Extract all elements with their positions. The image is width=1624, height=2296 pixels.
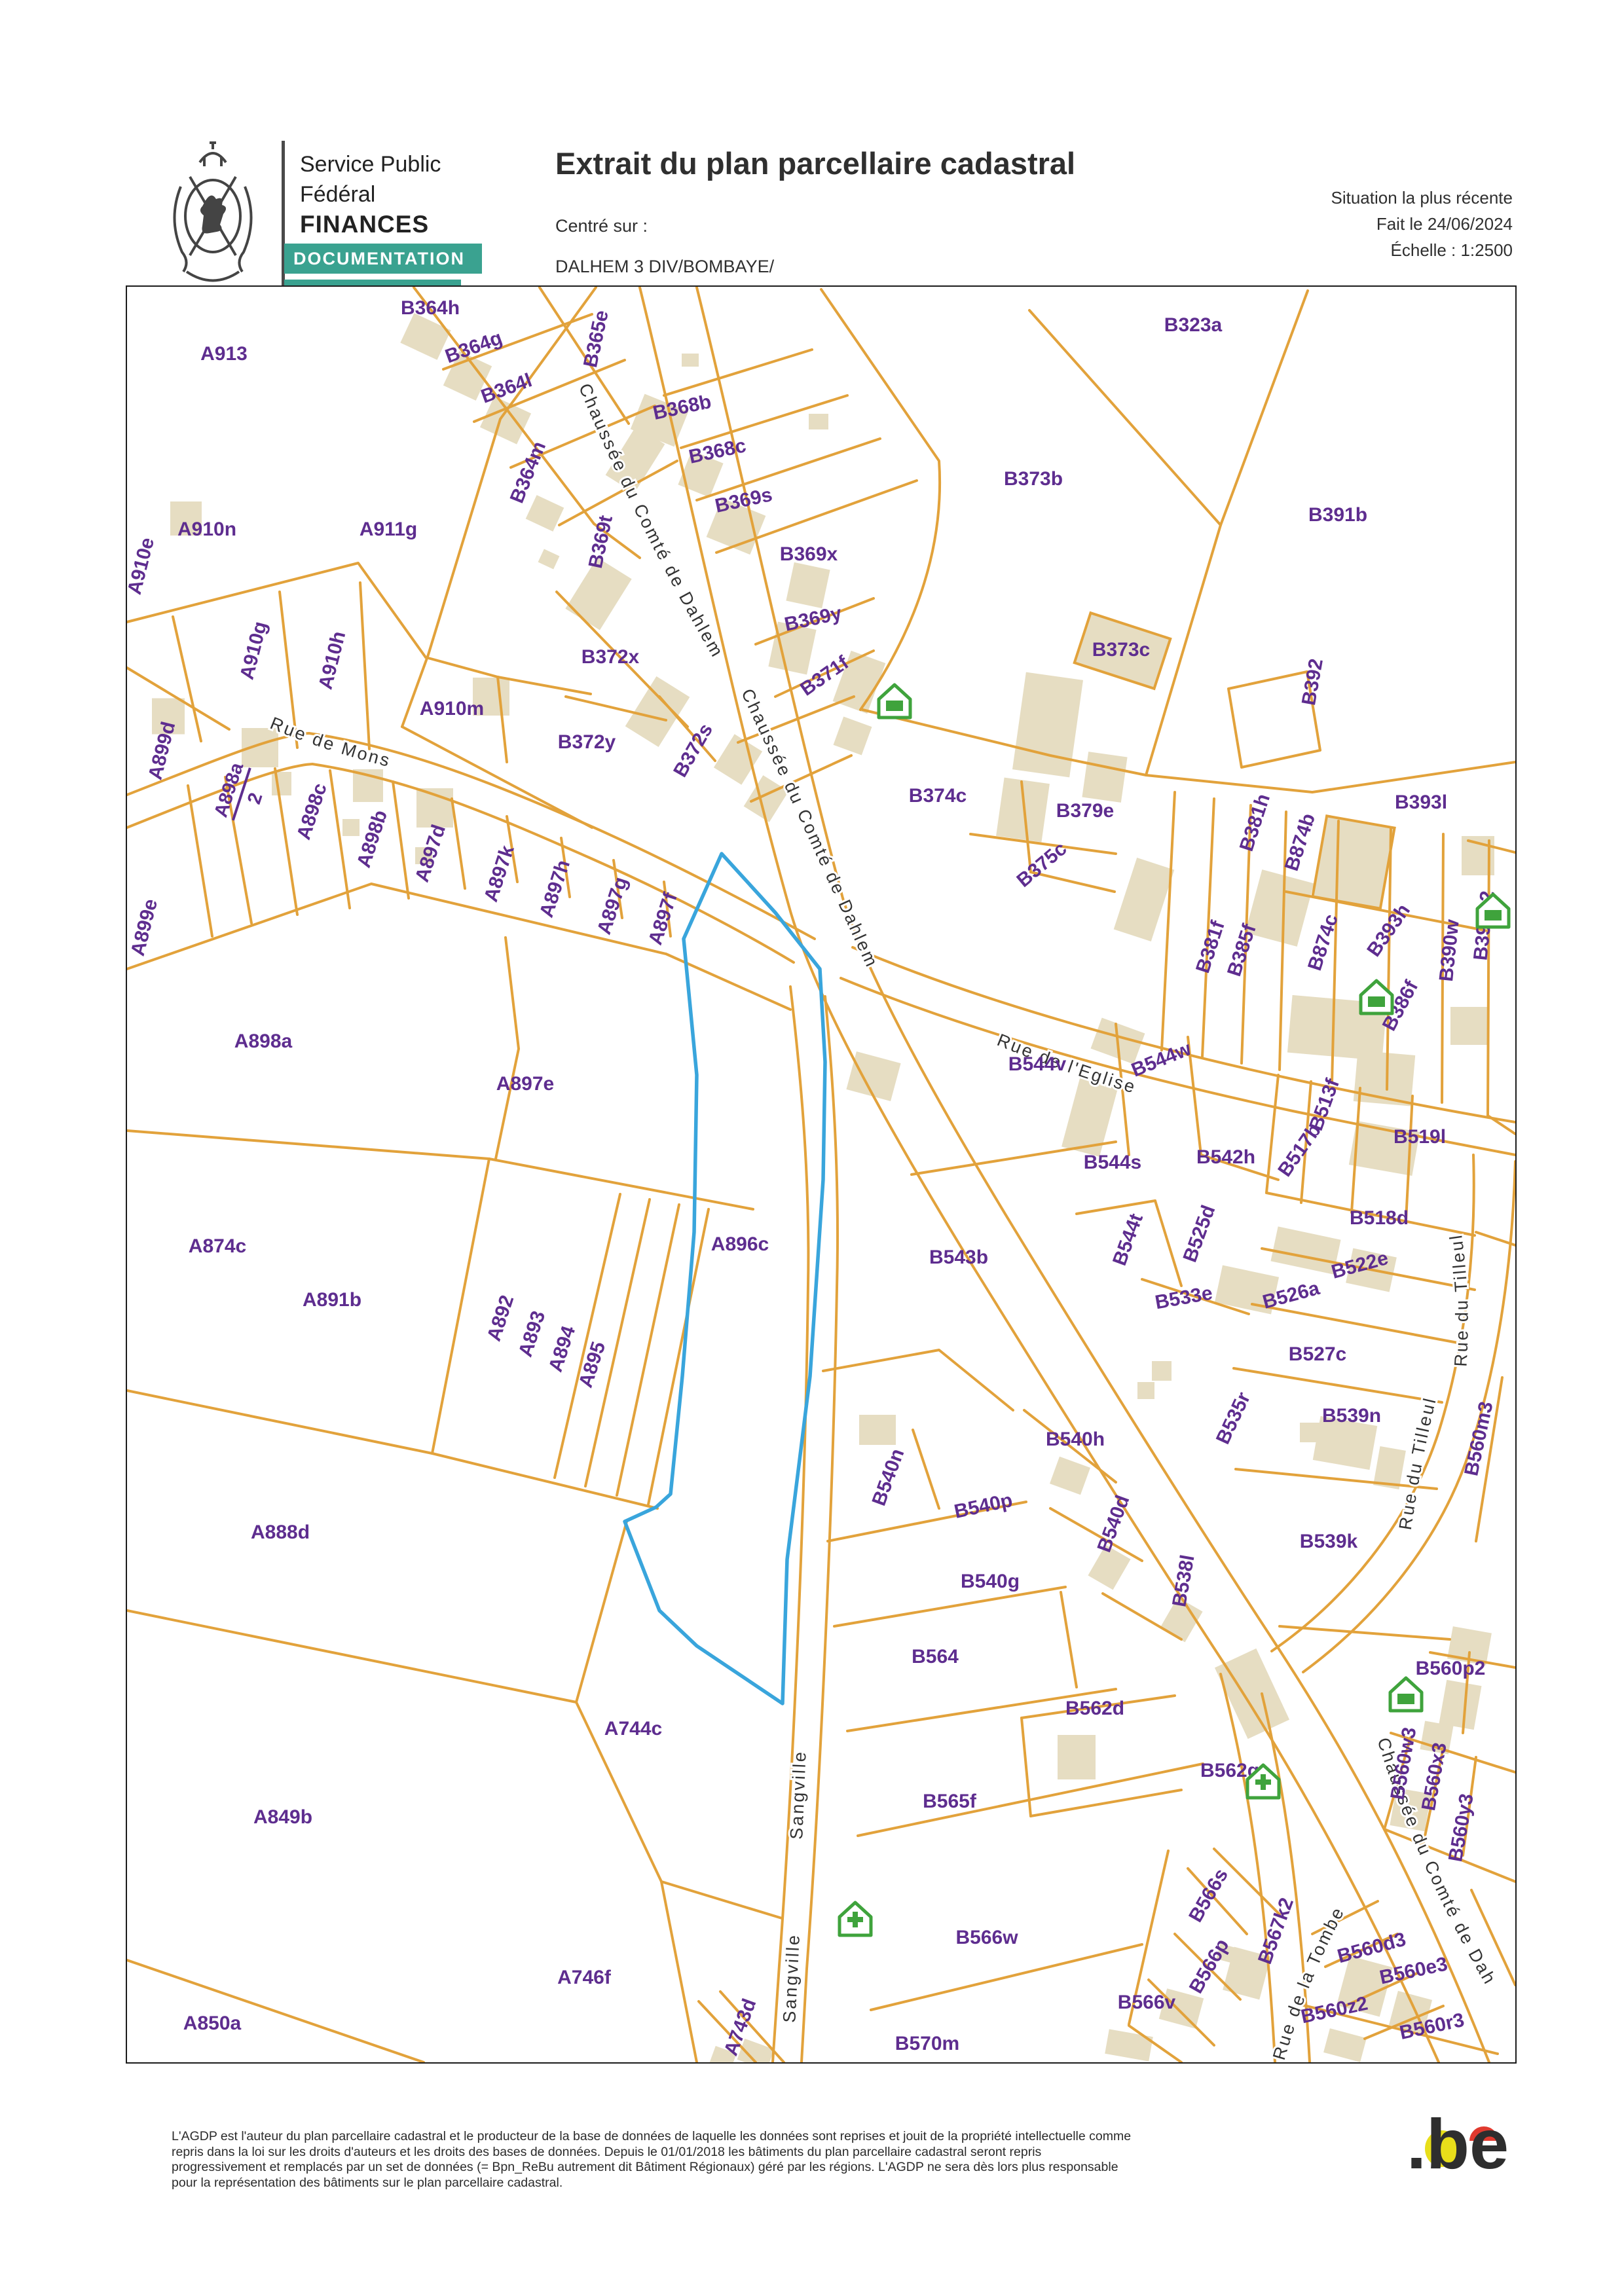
parcel-label: A896c	[711, 1233, 769, 1255]
building	[1300, 1423, 1319, 1442]
street-label: Sangville	[779, 1933, 803, 2023]
parcel-label: B562d	[1065, 1698, 1124, 1719]
parcel-boundary	[871, 1944, 1142, 2010]
page-title: Extrait du plan parcellaire cadastral	[555, 145, 1075, 181]
parcel-label: B369t	[585, 513, 617, 570]
parcel-label: A892	[483, 1292, 519, 1343]
building	[682, 354, 699, 367]
parcel-label: A849b	[253, 1806, 312, 1828]
parcel-label: B518d	[1350, 1207, 1409, 1229]
building	[1323, 2028, 1367, 2062]
parcel-label: B369x	[780, 543, 838, 565]
building	[1050, 1457, 1090, 1495]
org-line-3: FINANCES	[300, 210, 441, 240]
parcel-boundary	[393, 782, 409, 898]
parcel-label: B539n	[1322, 1405, 1381, 1427]
building	[1137, 1382, 1154, 1399]
parcel-label: A888d	[251, 1522, 310, 1543]
parcel-boundary	[821, 289, 940, 710]
building	[1152, 1361, 1172, 1381]
parcel-boundary	[188, 786, 212, 936]
parcel-label: B364m	[506, 439, 550, 507]
parcel-label: A910m	[420, 698, 484, 720]
parcel-label: B538l	[1168, 1553, 1198, 1609]
parcel-label: A850a	[183, 2013, 242, 2034]
parcel-label: B544s	[1084, 1152, 1141, 1173]
parcel-boundary	[802, 996, 838, 2062]
parcel-label: B544v	[1008, 1053, 1067, 1075]
disclaimer-line-2: repris dans la loi sur les droits d'aute…	[172, 2145, 1416, 2160]
cadastral-map: Chaussée du Comté de DahlemChaussée du C…	[126, 285, 1517, 2064]
parcel-boundary	[1476, 1232, 1515, 1245]
parcel-label: B560e3	[1378, 1953, 1450, 1988]
parcel-label: A913	[200, 343, 248, 365]
parcel-label: B560x3	[1418, 1741, 1451, 1812]
parcel-label: A898a	[234, 1030, 293, 1052]
parcel-label: B560z2	[1299, 1993, 1370, 2028]
parcel-label: A891b	[303, 1289, 361, 1311]
parcel-label: B391b	[1308, 504, 1367, 526]
building	[400, 313, 451, 360]
parcel-boundary	[576, 1702, 697, 2062]
parcel-label: B375c	[1013, 838, 1071, 892]
parcel-label: A897f	[644, 890, 682, 948]
street-label: Rue de Mons	[267, 713, 393, 771]
green-house-cross-icon	[840, 1903, 871, 1935]
disclaimer-line-4: pour la représentation des bâtiments sur…	[172, 2176, 1416, 2191]
disclaimer-line-1: L'AGDP est l'auteur du plan parcellaire …	[172, 2129, 1416, 2145]
parcel-label: B540p	[952, 1489, 1014, 1523]
parcel-boundary	[1061, 1592, 1077, 1687]
parcel-boundary	[489, 1159, 753, 1209]
parcel-label: A897k	[480, 843, 519, 905]
building	[538, 549, 560, 570]
parcel-label: B525d	[1179, 1203, 1220, 1266]
building	[342, 819, 360, 836]
parcel-label: B564	[912, 1646, 959, 1667]
building	[1105, 2029, 1153, 2061]
parcel-label: B542h	[1196, 1146, 1255, 1168]
parcel-label: A910h	[315, 629, 350, 691]
parcel-label: B540h	[1046, 1429, 1105, 1450]
parcel-boundary	[834, 1587, 1065, 1626]
parcel-label: B372x	[581, 646, 640, 668]
parcel-boundary	[127, 1960, 424, 2062]
centered-on-label: Centré sur :	[555, 216, 648, 236]
parcel-label: B540n	[868, 1446, 909, 1509]
building	[1012, 672, 1083, 778]
parcel-label: B540g	[961, 1571, 1020, 1592]
parcel-label: A899d	[145, 720, 180, 782]
parcel-label: A874c	[189, 1235, 246, 1257]
org-line-1: Service Public	[300, 149, 441, 179]
parcel-boundary	[853, 947, 1515, 1122]
parcel-boundary	[617, 1205, 679, 1495]
parcel-label: A911g	[360, 519, 417, 540]
dot-be-logo: .be	[1401, 2095, 1513, 2187]
building	[1082, 752, 1127, 803]
disclaimer-line-3: progressivement et remplacés par un set …	[172, 2160, 1416, 2176]
parcel-boundary	[661, 1882, 782, 1918]
map-svg: Chaussée du Comté de DahlemChaussée du C…	[127, 287, 1515, 2062]
parcel-label: B544t	[1109, 1211, 1147, 1268]
building	[1439, 1680, 1482, 1730]
parcel-label: A897e	[496, 1073, 554, 1095]
parcel-label: A897g	[593, 875, 632, 938]
building	[786, 562, 830, 608]
street-label: Rue du Tilleul	[1446, 1232, 1472, 1367]
date-text: Fait le 24/06/2024	[1185, 211, 1513, 237]
parcel-label: B323a	[1164, 314, 1223, 336]
parcel-label-fraction: A898a2	[210, 759, 274, 828]
parcel-boundary	[1234, 1368, 1442, 1402]
parcel-label: B560p2	[1416, 1658, 1486, 1679]
parcel-boundary	[1162, 792, 1175, 1050]
parcel-label: B565f	[923, 1791, 977, 1812]
building	[1058, 1735, 1096, 1779]
parcel-boundary	[496, 938, 519, 1159]
parcel-label: B372y	[558, 731, 616, 753]
org-line-2: Fédéral	[300, 179, 441, 210]
parcel-label: A910e	[127, 536, 158, 597]
parcel-label: B381f	[1192, 918, 1229, 976]
parcel-boundary	[127, 1131, 489, 1159]
parcel-label: B390w	[1435, 918, 1464, 983]
parcel-label: B566v	[1118, 1992, 1176, 2013]
belgium-coat-of-arms-icon	[164, 137, 262, 308]
building	[809, 414, 828, 429]
parcel-label: B392	[1298, 657, 1327, 707]
parcel-label: B385f	[1223, 921, 1261, 979]
parcel-boundary	[432, 1159, 489, 1453]
badge-documentation: DOCUMENTATION	[284, 244, 482, 274]
parcel-label: B374c	[909, 785, 967, 807]
parcel-label: B372s	[669, 720, 717, 781]
parcel-label: B381h	[1236, 792, 1274, 854]
parcel-boundary	[1252, 1304, 1468, 1345]
parcel-boundary	[1266, 1075, 1278, 1193]
parcel-label: B560d3	[1335, 1929, 1409, 1968]
building	[834, 717, 872, 756]
parcel-boundary	[648, 1209, 709, 1504]
parcel-boundary	[1155, 1201, 1181, 1286]
parcel-boundary	[452, 799, 465, 888]
building	[272, 772, 291, 795]
parcel-boundary	[862, 710, 1146, 775]
parcel-label: A744c	[604, 1718, 662, 1740]
parcel-boundary	[360, 583, 369, 749]
parcel-boundary	[1029, 310, 1221, 525]
parcel-boundary	[913, 1430, 939, 1508]
parcel-boundary	[127, 1391, 432, 1453]
green-house-icon	[879, 685, 910, 718]
parcel-boundary	[1077, 1201, 1155, 1214]
scale-text: Échelle : 1:2500	[1185, 237, 1513, 263]
parcel-label: A898c	[293, 780, 331, 842]
parcel-label: B373b	[1004, 468, 1063, 490]
parcel-label: B543b	[929, 1247, 988, 1268]
parcel-label: B527c	[1289, 1343, 1346, 1365]
parcel-boundary	[127, 884, 790, 1010]
parcel-boundary	[1221, 291, 1308, 525]
building	[1312, 816, 1394, 908]
parcel-boundary	[330, 771, 350, 908]
parcel-boundary	[127, 1611, 576, 1702]
green-house-icon	[1390, 1678, 1422, 1711]
parcel-boundary	[1280, 1626, 1450, 1639]
parcel-label: B519l	[1393, 1126, 1446, 1148]
building	[526, 495, 564, 532]
parcel-label: B540d	[1094, 1493, 1134, 1556]
parcel-label: A898b	[353, 808, 392, 871]
building	[1114, 858, 1175, 941]
parcel-label: B560y3	[1445, 1792, 1478, 1863]
parcel-boundary	[823, 1350, 1013, 1410]
parcel-boundary	[1146, 762, 1515, 792]
parcel-label: B393l	[1395, 792, 1447, 813]
parcel-label: A910g	[236, 619, 272, 682]
parcel-label: B566w	[955, 1927, 1018, 1948]
situation-text: Situation la plus récente	[1185, 185, 1513, 211]
parcel-label: A893	[515, 1308, 550, 1359]
centered-on-value: DALHEM 3 DIV/BOMBAYE/	[555, 257, 774, 277]
building	[859, 1415, 896, 1445]
parcel-label: B379e	[1056, 800, 1114, 822]
cadastral-extract-page: Service Public Fédéral FINANCES DOCUMENT…	[0, 0, 1624, 2296]
parcel-boundary	[1488, 1116, 1515, 1134]
svg-text:2: 2	[244, 790, 267, 807]
street-label: Sangville	[786, 1750, 810, 1840]
parcel-label: B570m	[895, 2033, 959, 2054]
parcel-label: B539k	[1300, 1531, 1358, 1552]
building	[1450, 1007, 1488, 1045]
parcel-boundary	[127, 563, 426, 657]
parcel-label: B517b	[1274, 1120, 1325, 1181]
parcel-label: B373c	[1092, 639, 1150, 661]
parcel-label: A746f	[557, 1967, 612, 1988]
parcel-label: A894	[545, 1323, 580, 1375]
parcel-label: B535r	[1212, 1389, 1255, 1448]
parcel-label: B364h	[401, 297, 460, 319]
svg-text:.be: .be	[1407, 2104, 1509, 2183]
parcel-label: B567k2	[1254, 1895, 1298, 1967]
parcel-boundary	[576, 1522, 627, 1702]
parcel-label: A910n	[177, 519, 236, 540]
parcel-label: A899e	[127, 897, 162, 958]
parcel-boundary	[1488, 841, 1489, 1116]
